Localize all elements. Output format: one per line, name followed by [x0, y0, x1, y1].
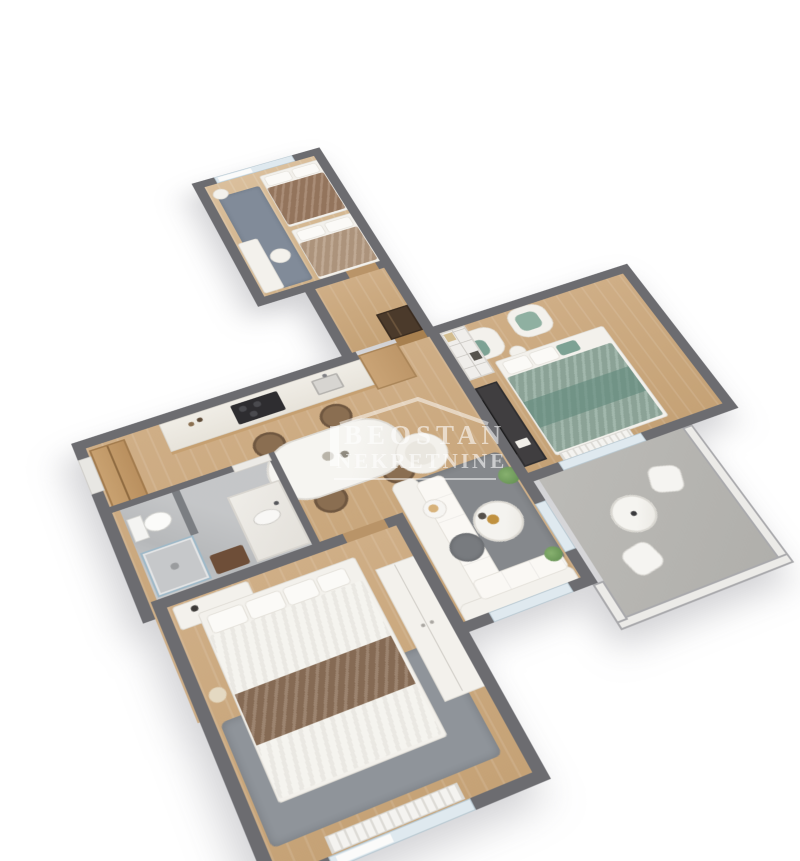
floorplan-screenshot: BEOSTAN NEKRETNINE: [0, 0, 800, 861]
floorplan-3d-render: [0, 95, 800, 861]
